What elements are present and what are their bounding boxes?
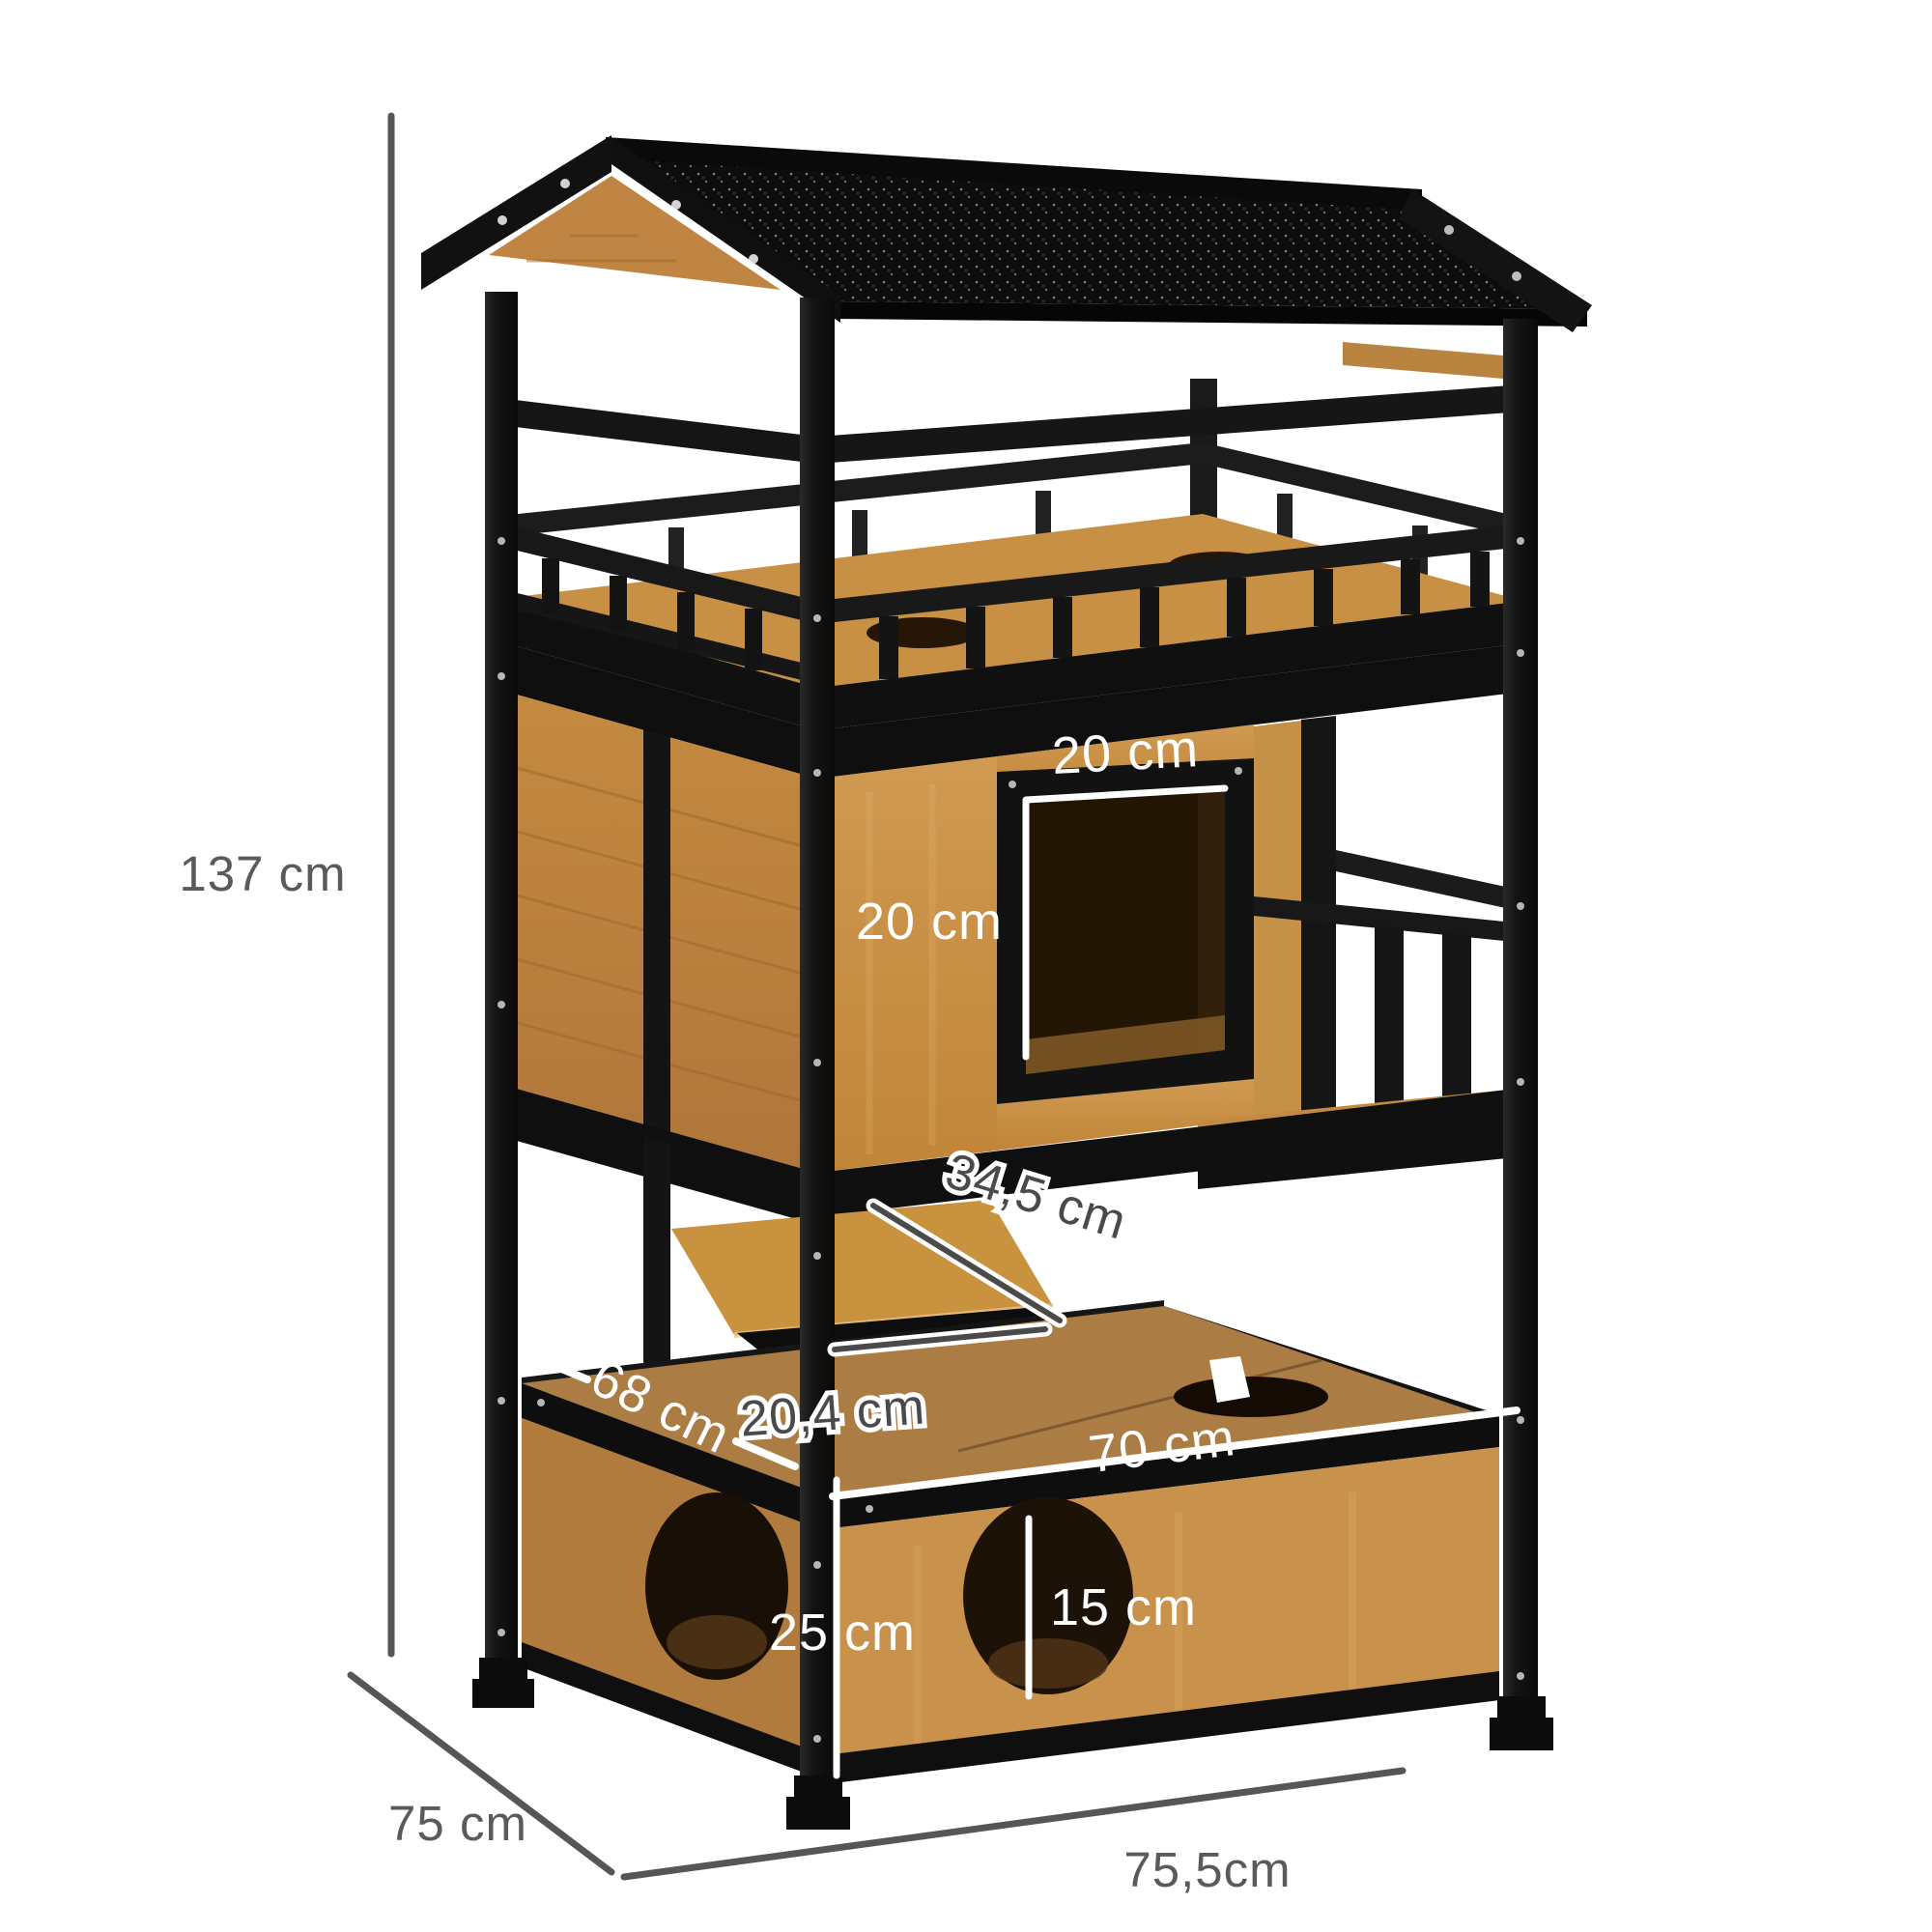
house-left-stud <box>643 729 670 1142</box>
front-foot <box>786 1797 850 1830</box>
cat-house-illustration <box>421 135 1592 1830</box>
base-top-hole <box>1174 1377 1328 1417</box>
roof-beam-left <box>499 398 817 464</box>
dim-label-overall-height: 137 cm <box>179 846 346 901</box>
right-post <box>1503 319 1538 1700</box>
dim-label-hole-diameter: 15 cm <box>1050 1578 1197 1636</box>
dim-label-base-depth: 75 cm <box>388 1796 527 1851</box>
cat-house-figure: 137 cm 75 cm 75,5cm 20 cm 20 cm 34,5 cm … <box>0 0 1932 1932</box>
house <box>499 641 1536 1225</box>
house-front-wall <box>817 756 997 1173</box>
left-post <box>485 292 518 1663</box>
dim-label-door-width: 20 cm <box>1051 720 1201 785</box>
left-foot <box>472 1679 534 1708</box>
dim-label-door-height: 20 cm <box>856 893 1003 951</box>
front-post <box>800 298 835 1779</box>
cat-door <box>997 758 1254 1104</box>
litter-box-base <box>522 1300 1499 1783</box>
product-dimension-diagram: 137 cm 75 cm 75,5cm 20 cm 20 cm 34,5 cm … <box>0 0 1932 1932</box>
roof-underside-wood <box>1343 342 1503 379</box>
roof <box>421 135 1592 379</box>
dim-label-base-width: 75,5cm <box>1123 1842 1291 1897</box>
dim-label-base-height: 25 cm <box>769 1604 916 1662</box>
right-foot <box>1490 1718 1553 1750</box>
